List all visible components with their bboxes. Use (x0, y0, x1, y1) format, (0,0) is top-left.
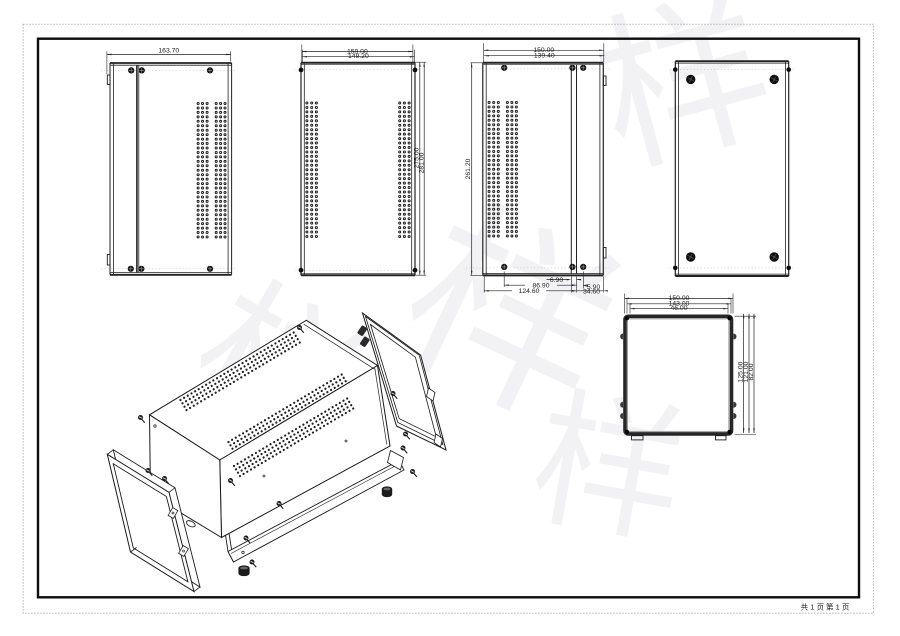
svg-text:样: 样 (521, 373, 698, 564)
svg-text:281.00: 281.00 (418, 152, 425, 173)
svg-text:124.60: 124.60 (519, 288, 540, 295)
svg-text:46.00: 46.00 (670, 305, 687, 312)
svg-text:149.20: 149.20 (348, 53, 369, 60)
svg-text:82.00: 82.00 (748, 363, 755, 380)
svg-text:163.70: 163.70 (158, 48, 179, 55)
svg-text:261.20: 261.20 (465, 158, 472, 179)
svg-text:6.90: 6.90 (550, 277, 563, 284)
svg-text:139.40: 139.40 (534, 52, 555, 59)
svg-text:共 1 页 第 1 页: 共 1 页 第 1 页 (801, 602, 850, 612)
svg-text:34.60: 34.60 (583, 288, 600, 295)
